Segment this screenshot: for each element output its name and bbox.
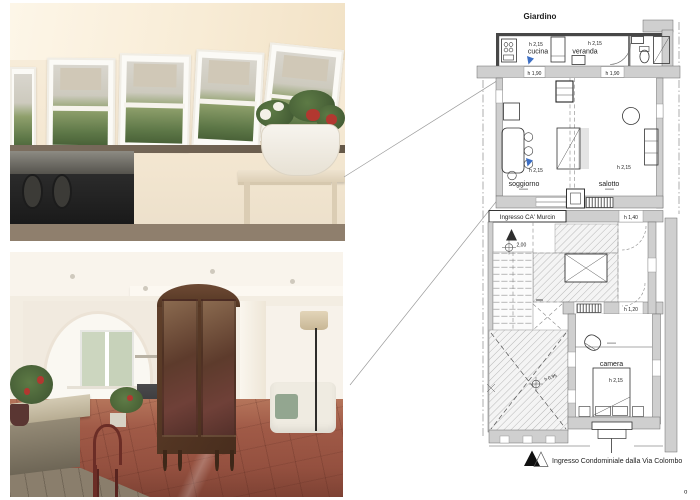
radiator xyxy=(586,198,613,208)
veranda-label: veranda xyxy=(572,49,597,56)
salotto-height: h 2,15 xyxy=(617,165,631,171)
staircase xyxy=(493,252,533,356)
radiator xyxy=(577,304,601,313)
camera-label: camera xyxy=(600,361,623,368)
low-attic-zone xyxy=(489,330,568,431)
nightstand xyxy=(579,407,590,417)
ingresso-box-label: Ingresso CA' Murcin xyxy=(500,214,556,221)
low-level-point-symbol xyxy=(529,377,543,391)
property-boundary-lines xyxy=(483,22,679,438)
entry-and-stairs-section: 2,00 h 1,20 xyxy=(488,218,677,452)
potted-plant xyxy=(10,365,57,429)
entry-level-label: 2,00 xyxy=(517,243,527,249)
floor-lamp-pole xyxy=(315,328,317,431)
wooden-chair xyxy=(93,424,121,498)
opening-height-left: h 1,90 xyxy=(528,71,542,77)
antique-display-cabinet xyxy=(157,284,240,475)
window xyxy=(118,53,191,151)
bedroom-chair xyxy=(582,332,603,352)
cucina-height: h 2,15 xyxy=(529,42,543,48)
kitchen-fixtures xyxy=(502,39,517,62)
photo-leader-lines xyxy=(344,62,527,385)
crossed-skylight-box xyxy=(565,254,607,282)
bay-window xyxy=(592,422,632,453)
recessed-light xyxy=(70,274,75,279)
bathroom-fixtures xyxy=(632,37,670,64)
veranda-strip: h 2,15 cucina h 2,15 veranda xyxy=(496,20,673,72)
soggiorno-label: soggiorno xyxy=(509,181,540,188)
bed xyxy=(593,368,630,417)
entrance-caption: Ingresso Condominiale dalla Via Colombo xyxy=(552,458,682,465)
salotto-furniture xyxy=(623,108,659,166)
sofa-throw xyxy=(275,394,298,419)
level-point-symbol xyxy=(502,241,516,255)
entrance-triangle-icon xyxy=(524,451,540,467)
level-marker-blue xyxy=(526,158,533,167)
lower-section: h 0,95 camera h 2,15 xyxy=(487,314,663,453)
salotto-label: salotto xyxy=(599,181,620,188)
floor xyxy=(10,224,345,241)
recessed-light xyxy=(210,269,215,274)
opening-height-right: h 1,90 xyxy=(606,71,620,77)
level-marker-blue xyxy=(527,56,534,65)
cucina-label: cucina xyxy=(528,49,548,56)
veranda-height: h 2,15 xyxy=(588,41,602,47)
ingresso-height: h 1,40 xyxy=(624,215,638,221)
veranda-fixtures xyxy=(551,37,631,65)
ingresso-row: Ingresso CA' Murcin h 1,40 xyxy=(489,211,663,223)
small-plant xyxy=(110,387,143,426)
back-window xyxy=(80,330,134,388)
corner-mark: o xyxy=(684,490,688,496)
camera-height: h 2,15 xyxy=(609,378,623,384)
low-ceiling-label: h 0,95 xyxy=(544,373,558,382)
listing-collage: Giardino xyxy=(0,0,700,500)
window xyxy=(10,67,36,157)
window xyxy=(46,57,114,152)
recessed-light xyxy=(290,279,295,284)
soggiorno-height: h 2,15 xyxy=(529,168,543,174)
entrance-caption-group: Ingresso Condominiale dalla Via Colombo xyxy=(524,451,682,467)
garden-label: Giardino xyxy=(524,12,557,21)
upper-wall-band: h 1,90 h 1,90 xyxy=(477,56,680,78)
main-room: h 2,15 soggiorno h 2,15 salotto xyxy=(496,78,663,208)
living-room-photo xyxy=(10,252,343,497)
main-room-south-wall xyxy=(496,189,663,208)
nightstand xyxy=(633,407,644,417)
kitchen-veranda-photo xyxy=(10,3,345,241)
passage-height-label: h 1,20 xyxy=(624,307,638,313)
center-wardrobe xyxy=(556,81,589,169)
soggiorno-furniture xyxy=(502,103,533,180)
entry-triangle-marker xyxy=(506,229,517,241)
